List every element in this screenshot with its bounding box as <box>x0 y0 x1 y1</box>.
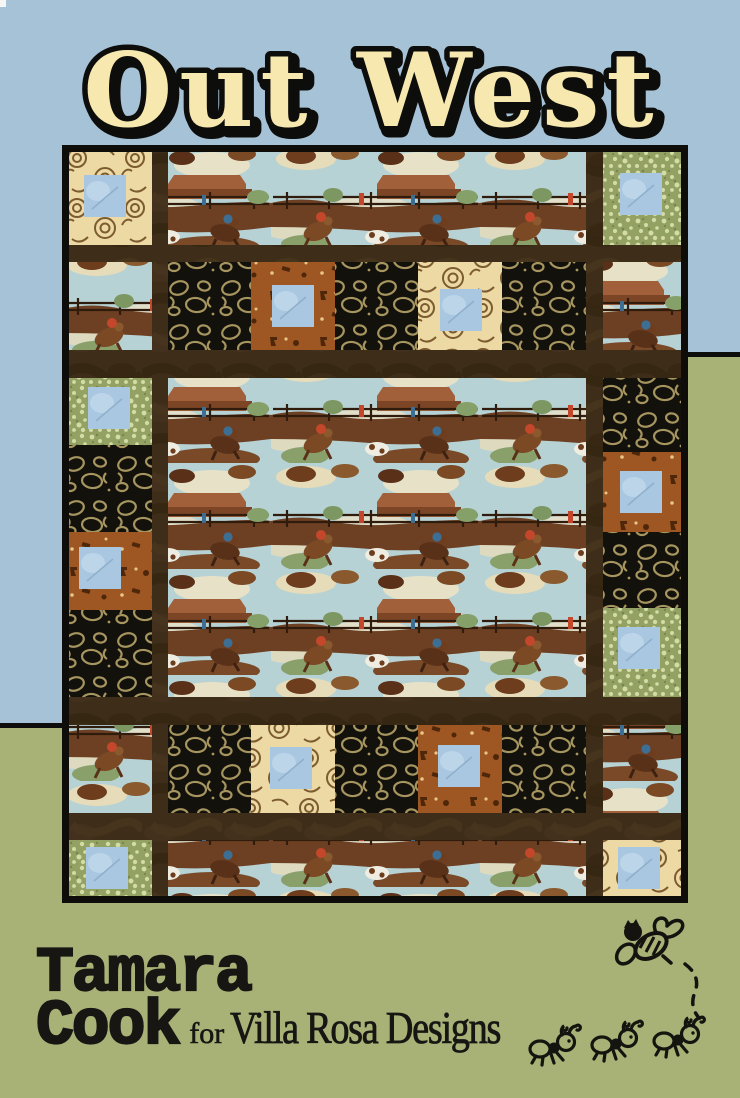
block-blue-square <box>618 627 660 669</box>
page-title: Out West Out West <box>0 8 740 158</box>
block-blue-square <box>620 471 662 513</box>
insect-doodles <box>515 908 740 1078</box>
block-rope <box>69 445 152 532</box>
block-blue-square <box>272 285 314 327</box>
block-rope <box>168 262 251 350</box>
quilt-photo <box>62 145 688 903</box>
block-blue-square <box>84 175 126 217</box>
block-cowboy <box>603 262 681 350</box>
block-blue-square <box>620 173 662 215</box>
block-rope <box>168 725 251 813</box>
credits: Tamara Cook for Villa Rosa Designs <box>36 948 548 1054</box>
block-rope <box>335 262 418 350</box>
block-cowboy <box>69 725 152 813</box>
block-blue-square <box>86 847 128 889</box>
block-blue-square <box>440 289 482 331</box>
title-text: Out West <box>83 31 660 151</box>
brand-name: Villa Rosa Designs <box>230 1010 500 1048</box>
block-rope <box>603 378 681 452</box>
block-cowboy-strip <box>168 152 586 245</box>
ant-icon <box>654 1017 704 1057</box>
block-cowboy-panel <box>168 378 586 697</box>
block-rope <box>502 262 586 350</box>
corner-notch <box>0 0 6 7</box>
block-blue-square <box>88 387 130 429</box>
block-cowboy <box>603 725 681 813</box>
flight-trail-dashed <box>685 964 699 1018</box>
block-blue-square <box>79 547 121 589</box>
block-blue-square <box>618 847 660 889</box>
block-blue-square <box>438 745 480 787</box>
ant-icon <box>530 1025 580 1065</box>
byline-connector: for <box>189 1021 224 1046</box>
ant-icon <box>592 1021 642 1061</box>
block-rope <box>335 725 418 813</box>
block-rope <box>69 610 152 697</box>
bee-icon <box>613 918 683 967</box>
pattern-cover: Out West Out West <box>0 0 740 1098</box>
block-rope <box>603 532 681 608</box>
block-cowboy-strip <box>168 840 586 896</box>
block-blue-square <box>270 747 312 789</box>
author-last-name: Cook <box>36 1001 179 1054</box>
block-rope <box>502 725 586 813</box>
block-cowboy <box>69 262 152 350</box>
